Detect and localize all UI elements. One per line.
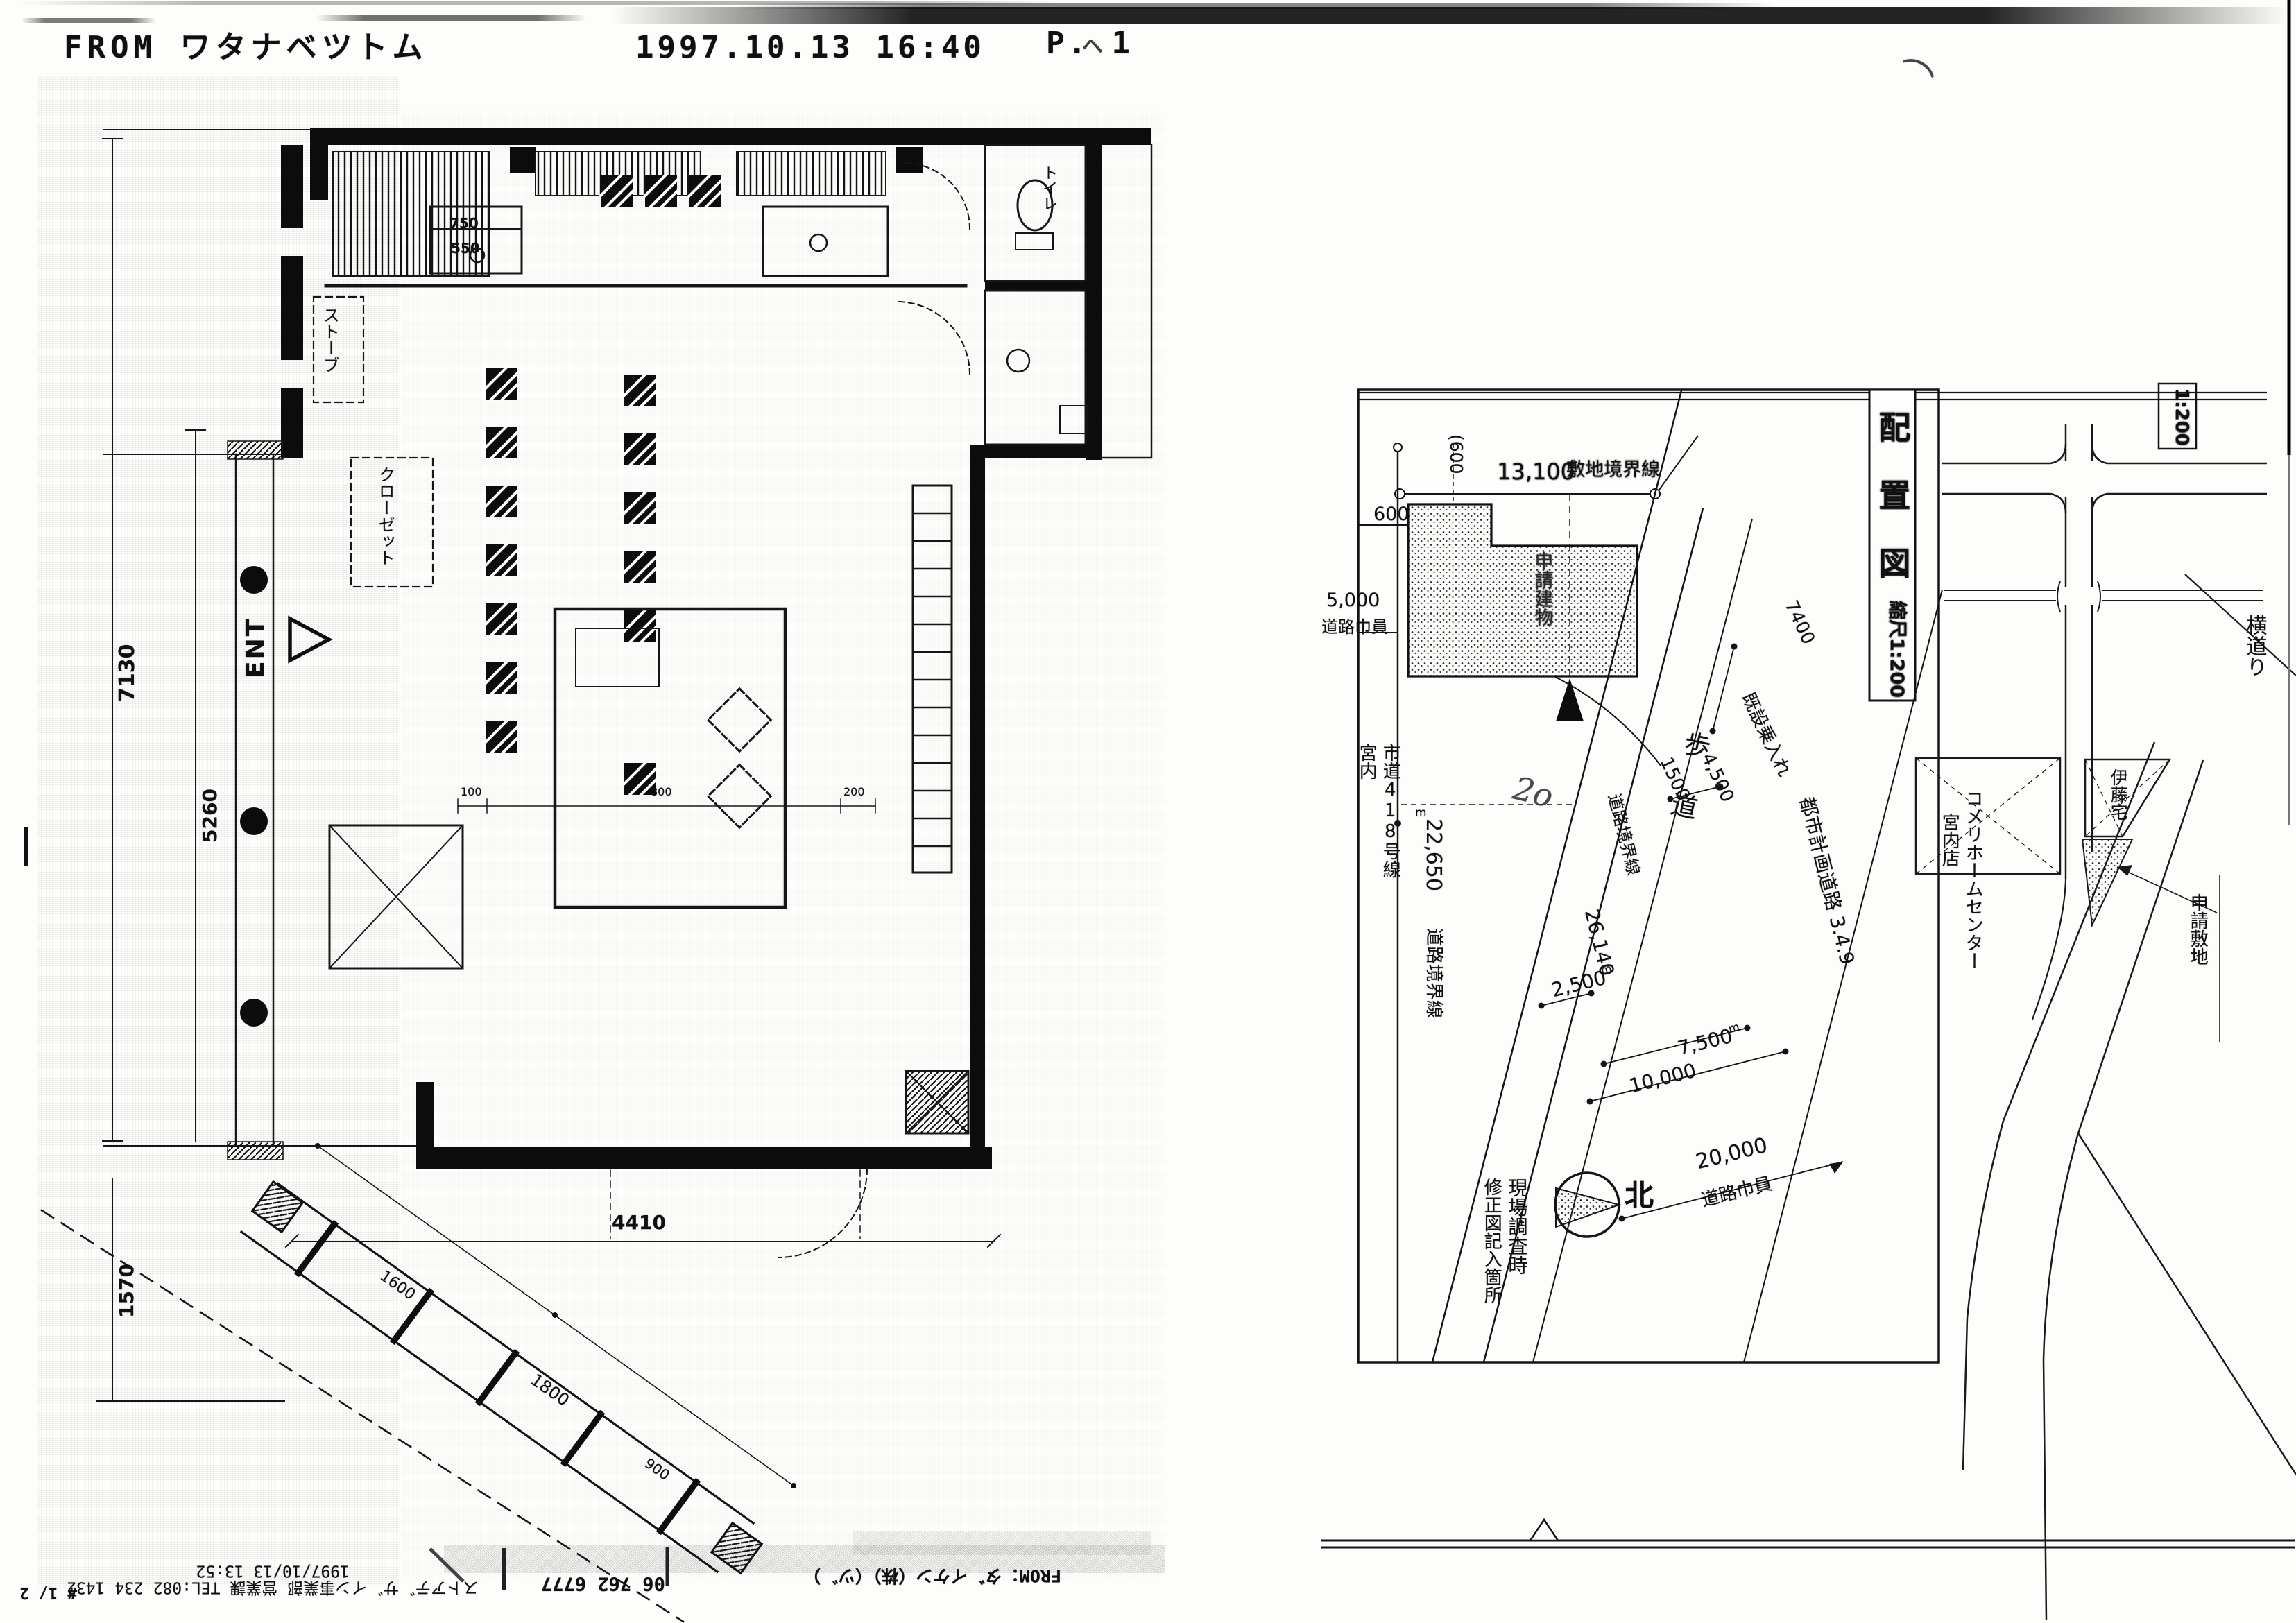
dim-200: 200 xyxy=(843,787,865,798)
footer-sender-line: ストアテ゛サ゛イン事業部 営業課 TEL:082 234 1432 xyxy=(67,1579,479,1595)
footer-sender-block: ストアテ゛サ゛イン事業部 営業課 TEL:082 234 1432 1997/1… xyxy=(67,1562,479,1595)
komeri-label-2: 宮内店 xyxy=(1939,813,1958,867)
north-arrow xyxy=(1555,1173,1619,1237)
applicant-label: 申請敷地 xyxy=(2188,893,2207,965)
dim-1570: 1570 xyxy=(117,1264,137,1318)
dim-600-paren: (600 xyxy=(1447,434,1465,474)
footer-phone: 06 762 6777 xyxy=(541,1573,665,1592)
site-plan-title: 配置図 xyxy=(1876,411,1909,615)
floor-plan xyxy=(26,128,1151,1622)
site-boundary-label: 敷地境界線 xyxy=(1566,461,1660,480)
dim-750: 750 xyxy=(449,216,479,231)
dim-600: 600 xyxy=(1373,505,1410,524)
ito-label: 伊藤宅 xyxy=(2109,768,2127,821)
komeri-label-1: コメリホームセンター xyxy=(1963,789,1982,970)
footer-datetime-line: 1997/10/13 13:52 xyxy=(67,1562,479,1579)
dim-5000: 5,000 xyxy=(1326,591,1380,610)
dim-800: 800 xyxy=(651,787,672,798)
north-label: 北 xyxy=(1625,1180,1654,1211)
survey-note-2: 修正図記入箇所 xyxy=(1482,1178,1500,1304)
dim-550: 550 xyxy=(451,241,480,256)
dim-7130: 7130 xyxy=(117,644,139,703)
survey-note-1: 現場調査時 xyxy=(1507,1178,1527,1275)
unit-m-7500: m xyxy=(1727,1021,1740,1035)
partial-scale-label: 1:200 xyxy=(2172,388,2191,446)
side-street-label: 横道り xyxy=(2243,615,2265,677)
road-boundary-vertical: 道路境界線 xyxy=(1424,928,1443,1018)
dim-100: 100 xyxy=(461,787,482,798)
building-label: 申請建物 xyxy=(1532,551,1551,626)
scan-drawing xyxy=(0,0,2296,1623)
building-footprint xyxy=(1408,504,1637,676)
fax-page: FROM ワタナベツトム 1997.10.13 16:40 P. 1 ヘ ⌒ xyxy=(0,0,2296,1623)
dim-22650: 22,650 xyxy=(1423,818,1445,891)
dim-13100: 13,100 xyxy=(1497,461,1575,484)
miyauchi-label: 宮内 xyxy=(1357,744,1376,780)
site-plan xyxy=(1321,384,2295,1547)
entrance-label: ENT xyxy=(243,617,269,678)
hand-scribble: 2o xyxy=(1510,771,1557,814)
footer-page-no: # 1/ 2 xyxy=(19,1584,77,1601)
road-width-label-w: 道路巾員 xyxy=(1321,619,1388,636)
datum-triangle xyxy=(1530,1520,1558,1540)
dim-5260: 5260 xyxy=(200,789,220,843)
stove-label: ストーブ xyxy=(320,307,338,373)
city-road-label: 市道418号線 xyxy=(1380,744,1399,878)
closet-label: クローゼット xyxy=(376,466,393,566)
toilet-label: トイレ xyxy=(1040,165,1056,211)
footer-from: FROM：タ゛イケン（株）（ツ゛） xyxy=(803,1566,1061,1584)
applicant-parcel xyxy=(2082,839,2132,925)
site-plan-scale: 縮尺1:200 xyxy=(1887,601,1906,698)
dim-4410: 4410 xyxy=(612,1212,666,1233)
unit-m-2500: m xyxy=(1600,963,1613,977)
